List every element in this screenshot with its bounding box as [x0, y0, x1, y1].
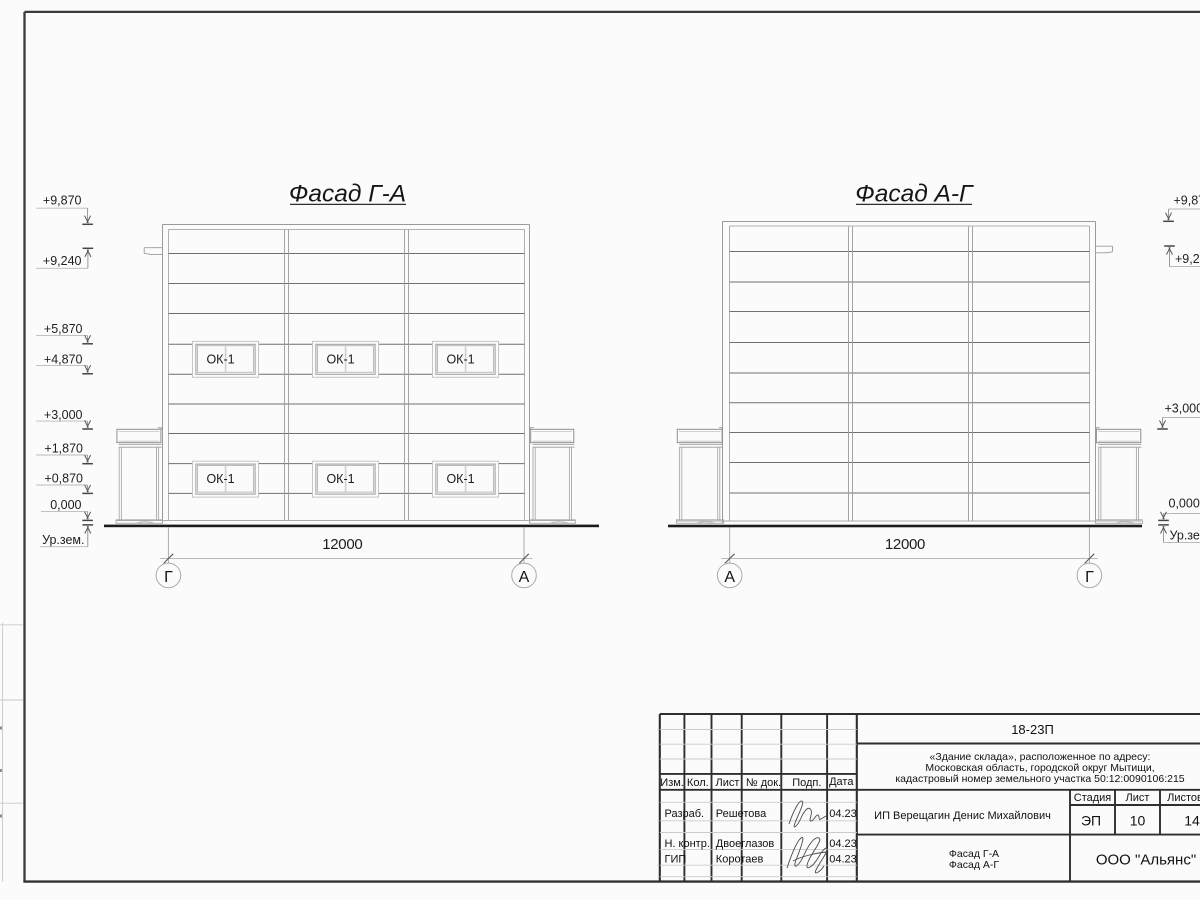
svg-text:Фасад Г-А: Фасад Г-А — [289, 181, 406, 208]
svg-text:Фасад Г-А: Фасад Г-А — [949, 848, 999, 860]
svg-text:ЭП: ЭП — [1081, 813, 1101, 829]
svg-text:Листов: Листов — [1167, 792, 1200, 804]
svg-text:Г: Г — [1085, 569, 1094, 586]
svg-text:Подп.: Подп. — [792, 777, 821, 789]
svg-text:+9,870: +9,870 — [43, 193, 82, 207]
svg-text:Решетова: Решетова — [716, 808, 767, 820]
svg-text:14: 14 — [1184, 813, 1200, 829]
svg-text:ОК-1: ОК-1 — [326, 352, 354, 366]
svg-text:Изм.: Изм. — [660, 777, 684, 789]
svg-text:10: 10 — [1130, 813, 1146, 829]
svg-text:+3,000: +3,000 — [1165, 402, 1200, 416]
svg-text:Н. контр.: Н. контр. — [665, 838, 710, 850]
svg-text:18-23П: 18-23П — [1011, 722, 1054, 737]
svg-text:Фасад А-Г: Фасад А-Г — [855, 181, 974, 208]
svg-text:Ур.зем.: Ур.зем. — [1170, 529, 1200, 543]
svg-text:Лист: Лист — [1126, 792, 1150, 804]
svg-text:04.23: 04.23 — [829, 838, 857, 850]
svg-text:Дата: Дата — [829, 776, 854, 788]
svg-text:Г: Г — [164, 569, 173, 586]
svg-text:Ур.зем.: Ур.зем. — [42, 533, 84, 547]
svg-text:+9,870: +9,870 — [1174, 193, 1200, 207]
svg-text:+9,240: +9,240 — [1175, 252, 1200, 266]
svg-text:ОК-1: ОК-1 — [206, 352, 234, 366]
svg-text:04.23: 04.23 — [829, 854, 857, 866]
svg-text:12000: 12000 — [885, 536, 925, 553]
svg-text:Двоеглазов: Двоеглазов — [716, 838, 775, 850]
svg-text:+4,870: +4,870 — [44, 353, 83, 367]
svg-text:ОК-1: ОК-1 — [446, 472, 474, 486]
svg-text:ИП Верещагин Денис Михайлович: ИП Верещагин Денис Михайлович — [874, 810, 1051, 822]
svg-text:Стадия: Стадия — [1074, 792, 1112, 804]
svg-text:ГИП: ГИП — [665, 854, 687, 866]
svg-text:Коротаев: Коротаев — [716, 854, 764, 866]
svg-text:0,000: 0,000 — [1169, 497, 1200, 511]
svg-text:0,000: 0,000 — [50, 498, 81, 512]
svg-text:А: А — [724, 569, 735, 586]
svg-text:+5,870: +5,870 — [44, 322, 83, 336]
svg-text:кадастровый номер земельного у: кадастровый номер земельного участка 50:… — [895, 773, 1184, 785]
svg-text:12000: 12000 — [322, 536, 362, 553]
svg-text:+0,870: +0,870 — [44, 472, 83, 486]
svg-text:А: А — [519, 569, 530, 586]
svg-text:Разраб.: Разраб. — [665, 808, 705, 820]
svg-text:ООО "Альянс": ООО "Альянс" — [1096, 852, 1196, 869]
svg-text:+1,870: +1,870 — [44, 442, 83, 456]
svg-text:ОК-1: ОК-1 — [446, 352, 474, 366]
svg-text:№ док.: № док. — [746, 777, 781, 789]
svg-text:+9,240: +9,240 — [43, 254, 82, 268]
svg-text:ОК-1: ОК-1 — [206, 472, 234, 486]
svg-text:Кол.: Кол. — [687, 777, 709, 789]
svg-text:04.23: 04.23 — [829, 808, 857, 820]
svg-text:+3,000: +3,000 — [44, 408, 83, 422]
svg-text:Фасад А-Г: Фасад А-Г — [949, 859, 999, 871]
svg-text:ОК-1: ОК-1 — [326, 472, 354, 486]
svg-text:Лист: Лист — [716, 777, 740, 789]
